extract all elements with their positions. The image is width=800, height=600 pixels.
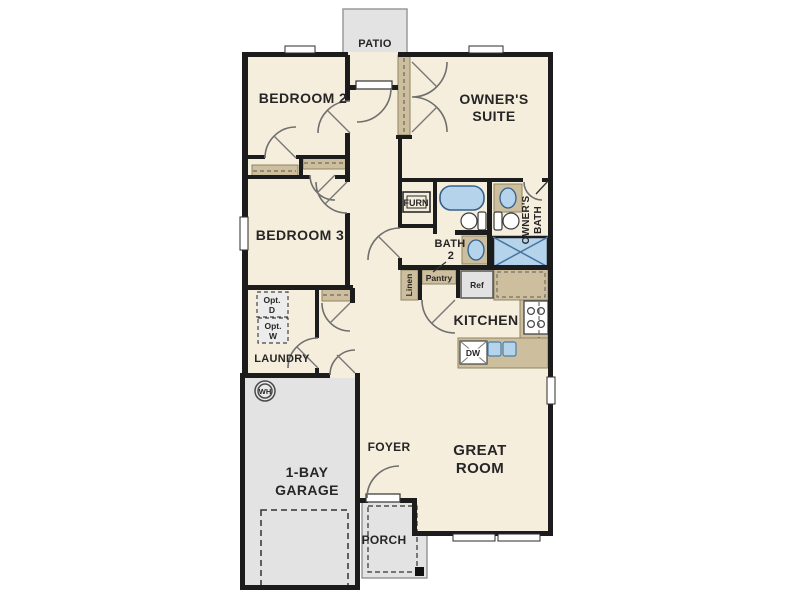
garage-label-line1: 1-BAY [286,464,329,480]
front-door-slab [366,494,400,502]
window [453,534,495,541]
owners-bath-label-line1: OWNER'S [521,195,532,244]
bathtub [440,186,484,210]
counter-top-run [494,269,548,300]
owners-bath-label-line2: BATH [533,206,544,234]
kitchen-label: KITCHEN [453,312,518,328]
refrigerator-label: Ref [470,280,484,290]
window [240,217,248,250]
pantry-label: Pantry [426,273,453,283]
porch-label: PORCH [362,533,407,547]
floor-plan-page: PATIO BEDROOM 2 OWNER'S SUITE BEDROOM 3 … [0,0,800,600]
dishwasher-label: DW [466,348,481,358]
owners-toilet [494,212,519,230]
great-room-label-line2: ROOM [456,460,504,477]
great-room-label-line1: GREAT [453,442,506,459]
bedroom3-label: BEDROOM 3 [256,227,344,243]
furnace-label: FURN [404,198,429,208]
bath2-label-line1: BATH [435,238,466,250]
bath2-toilet [461,212,486,230]
laundry-label: LAUNDRY [254,353,310,365]
owners-suite-label-line1: OWNER'S [459,91,528,107]
opt-dryer-label-line2: D [269,305,275,315]
opt-washer-label-line1: Opt. [265,321,282,331]
vanity-sink [468,240,484,260]
porch-post [415,567,424,576]
burner [528,321,535,328]
garage-label-line2: GARAGE [275,482,339,498]
opt-dryer-label-line1: Opt. [264,295,281,305]
vanity-sink [500,188,516,208]
opt-washer-label-line2: W [269,331,278,341]
window [547,377,555,404]
bath2-label-line2: 2 [448,250,454,262]
owners-suite-label-line2: SUITE [472,108,515,124]
foyer-label: FOYER [368,440,411,454]
owners-bath-vanity [494,184,522,212]
linen-label: Linen [404,274,414,297]
patio-door-slab [356,81,392,89]
range-cooktop [524,301,548,334]
window [469,46,503,53]
patio-label: PATIO [358,38,392,50]
burner [528,308,535,315]
bedroom2-label: BEDROOM 2 [259,90,347,106]
window [285,46,315,53]
bath2-vanity [462,236,490,264]
floor-plan-drawing: PATIO BEDROOM 2 OWNER'S SUITE BEDROOM 3 … [0,0,800,600]
window [498,534,540,541]
water-heater-label: WH [259,387,272,396]
